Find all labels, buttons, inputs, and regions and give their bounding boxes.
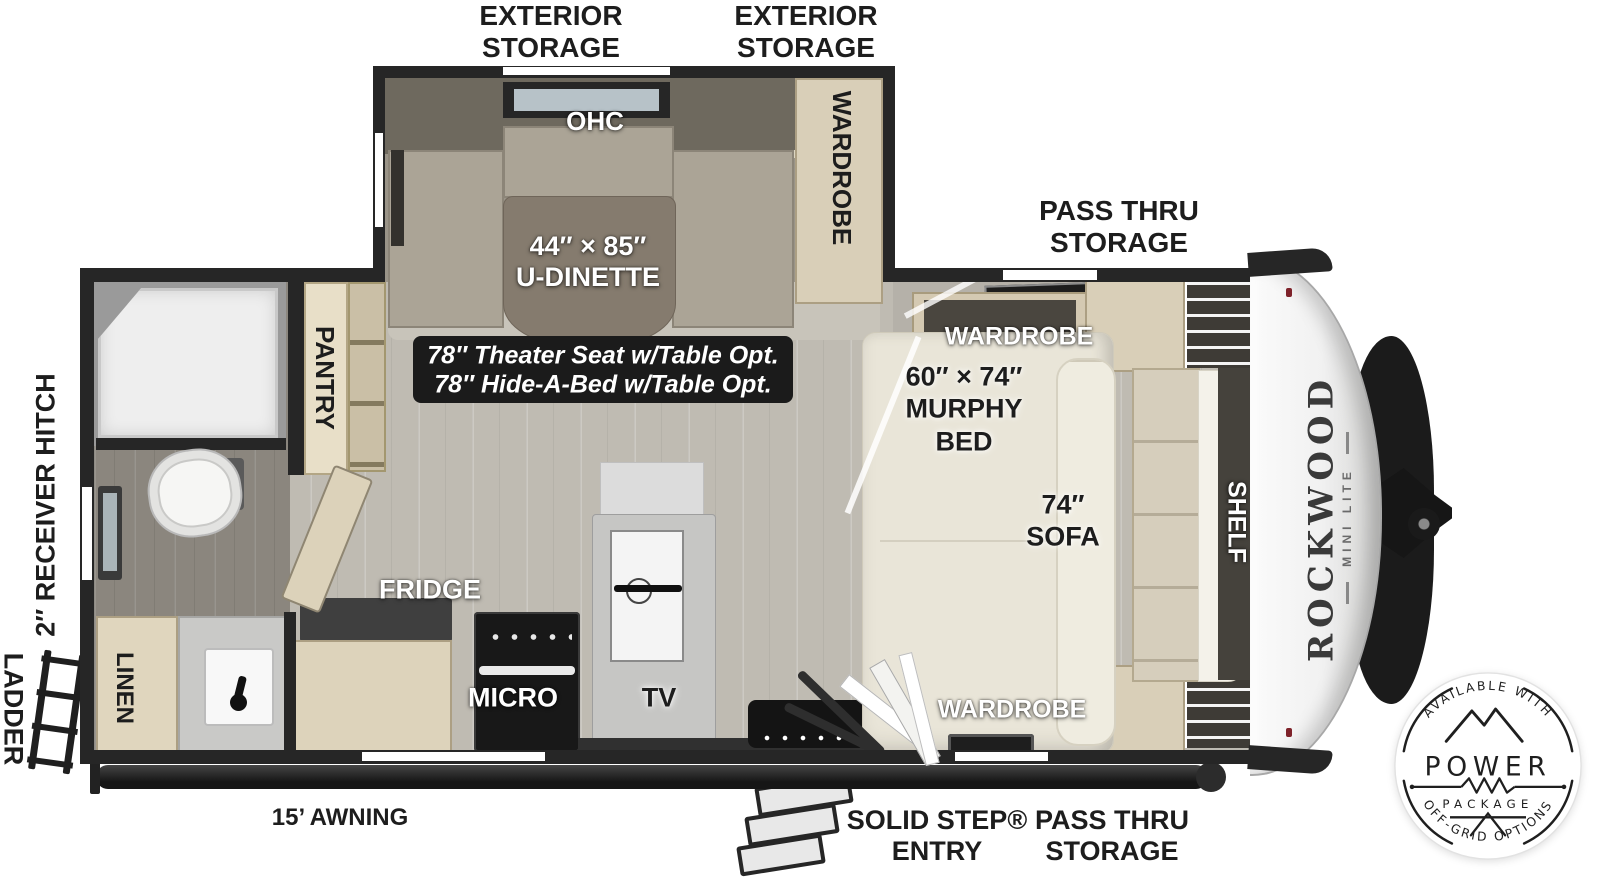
ladder-icon (26, 649, 89, 776)
exterior-storage-label-left: EXTERIORSTORAGE (479, 0, 622, 64)
fridge-label: FRIDGE (379, 574, 481, 605)
microwave-handle-bar (479, 666, 575, 675)
shower-pan (98, 288, 278, 438)
murphy-bed-label: 60″ × 74″MURPHYBED (905, 360, 1022, 457)
murphy-bed-panel (1132, 368, 1200, 682)
ohc-label: OHC (566, 107, 624, 137)
brand-series: MINI LITE (1341, 467, 1355, 567)
badge-power-word: POWER (1424, 752, 1551, 783)
tv-cabinet-back (600, 462, 704, 522)
brand-dash-top (1346, 432, 1349, 454)
ladder-label: LADDER (0, 653, 29, 766)
pantry-label: PANTRY (309, 326, 339, 430)
linen-label: LINEN (110, 652, 138, 724)
clearance-light-top (1286, 288, 1292, 297)
shelf-label: SHELF (1222, 481, 1251, 563)
awning-endcap-right (1196, 762, 1226, 792)
fridge-cabinet (294, 640, 452, 752)
bathroom-wall-front (288, 282, 304, 475)
vanity-faucet-knob (230, 694, 247, 711)
pantry-drawers (348, 282, 386, 472)
receiver-hitch-label: 2″ RECEIVER HITCH (30, 373, 61, 636)
window-left-rear (82, 487, 92, 580)
sofa-label: 74″SOFA (1026, 489, 1100, 554)
awning-roller (96, 765, 1208, 789)
exterior-storage-label-right: EXTERIORSTORAGE (734, 0, 877, 64)
micro-label: MICRO (468, 682, 558, 713)
power-package-badge: AVAILABLE WITH OFF-GRID OPTIONS POWER PA… (1393, 671, 1583, 861)
doorway-bottom (955, 752, 1048, 761)
window-bottom-left (362, 752, 545, 761)
tv-handle (614, 585, 682, 592)
badge-package-word: PACKAGE (1442, 797, 1533, 811)
window-top-right (1003, 270, 1097, 280)
awning-label: 15’ AWNING (272, 804, 408, 832)
tv-label: TV (642, 682, 677, 713)
medicine-cabinet-mirror (103, 493, 117, 571)
wall-top-left (80, 268, 376, 282)
range-grate-dots (482, 618, 572, 640)
tongue-jack-wheel (1408, 508, 1440, 540)
solid-step-entry-label: SOLID STEP®ENTRY (847, 805, 1027, 867)
u-dinette-label: 44″ × 85″U-DINETTE (516, 231, 660, 293)
brand-logo: ROCKWOOD (1302, 374, 1341, 662)
clearance-light-bottom (1286, 728, 1292, 737)
wardrobe-top-label: WARDROBE (945, 323, 1094, 352)
slide-window-gap-left (375, 133, 383, 227)
dinette-bench-right (672, 150, 794, 328)
slide-wall-window-pane (391, 150, 404, 246)
wardrobe-slide-label: WARDROBE (826, 91, 856, 246)
bathroom-wall-rear-stub (284, 612, 296, 752)
options-note-text: 78″ Theater Seat w/Table Opt.78″ Hide-A-… (427, 341, 778, 399)
brand-dash-bottom (1346, 582, 1349, 604)
slide-window-gap-top (503, 67, 670, 75)
slide-wall-right (883, 66, 895, 282)
wardrobe-bottom-label: WARDROBE (938, 696, 1087, 725)
pass-thru-storage-label-bottom: PASS THRUSTORAGE (1035, 805, 1189, 867)
front-cap-trim-top (1247, 247, 1332, 277)
dinette-bench-left (388, 150, 504, 328)
pass-thru-storage-label-top: PASS THRUSTORAGE (1039, 195, 1199, 259)
wall-bottom (80, 750, 1265, 764)
floorplan-rockwood-mini-lite: EXTERIORSTORAGE EXTERIORSTORAGE PASS THR… (0, 0, 1600, 881)
